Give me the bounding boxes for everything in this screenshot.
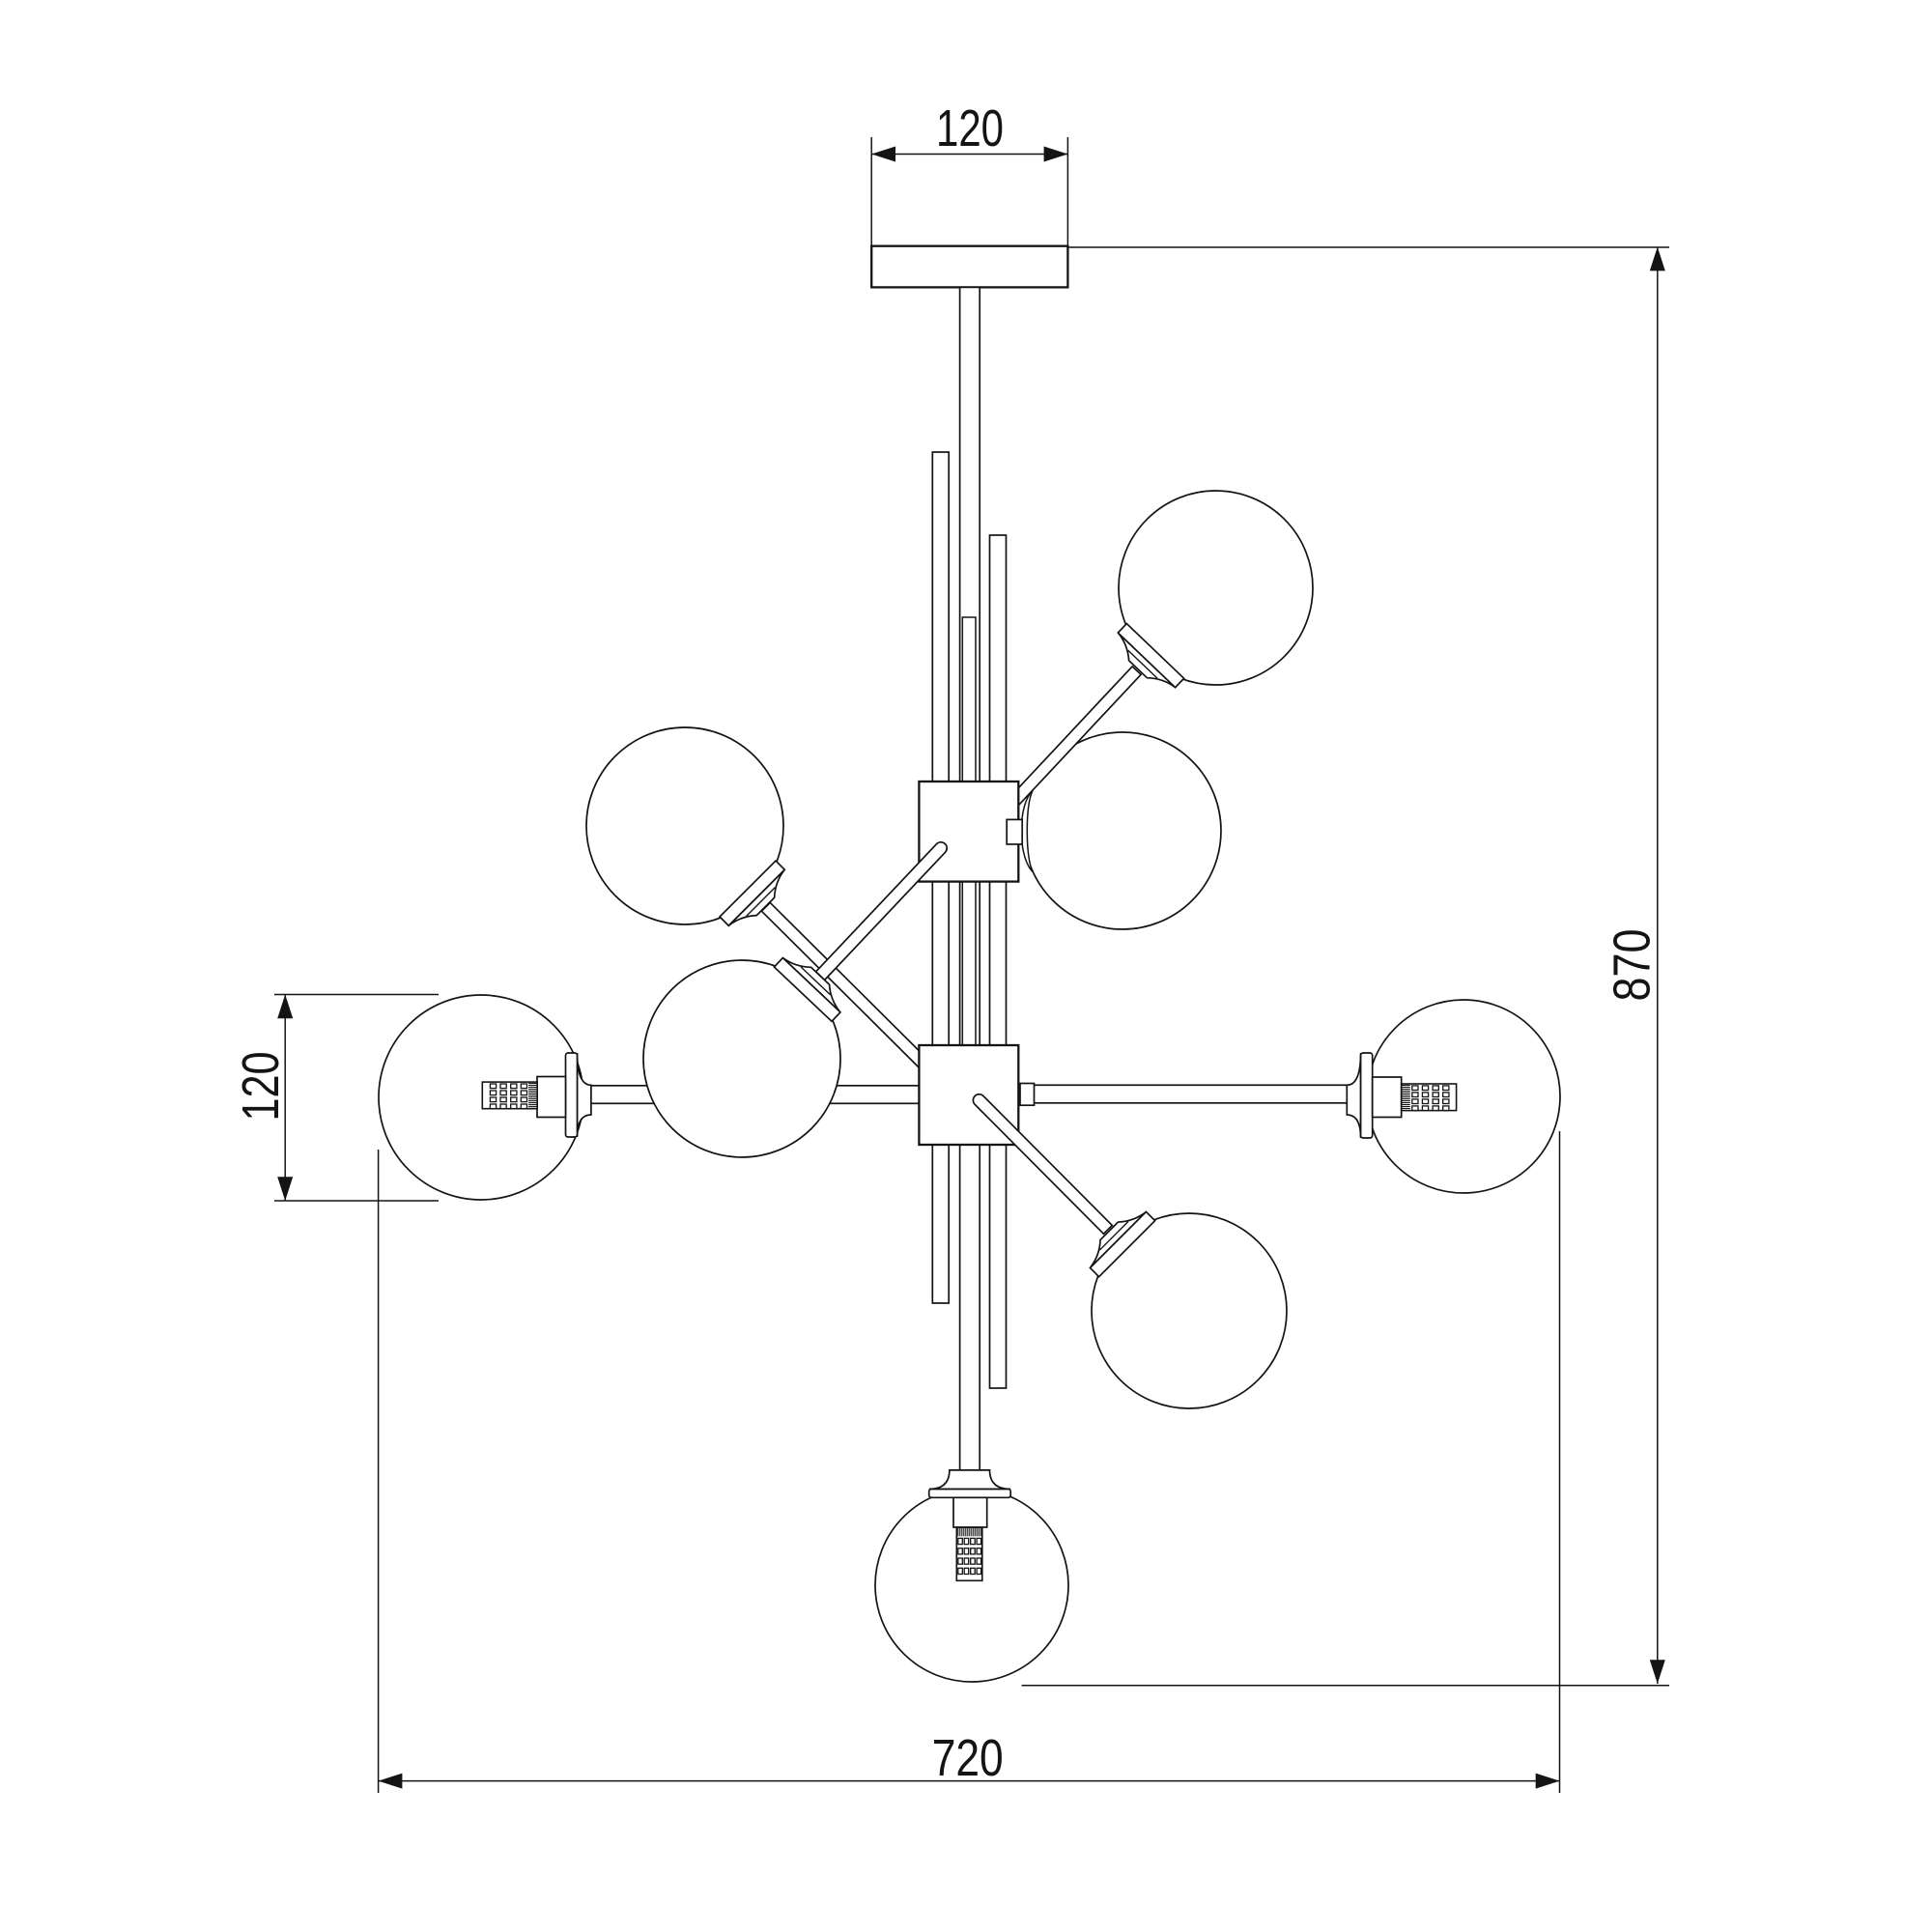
svg-text:120: 120 — [936, 100, 1004, 157]
svg-text:720: 720 — [932, 1730, 1004, 1787]
svg-text:870: 870 — [1605, 929, 1662, 1002]
svg-text:120: 120 — [233, 1052, 290, 1122]
